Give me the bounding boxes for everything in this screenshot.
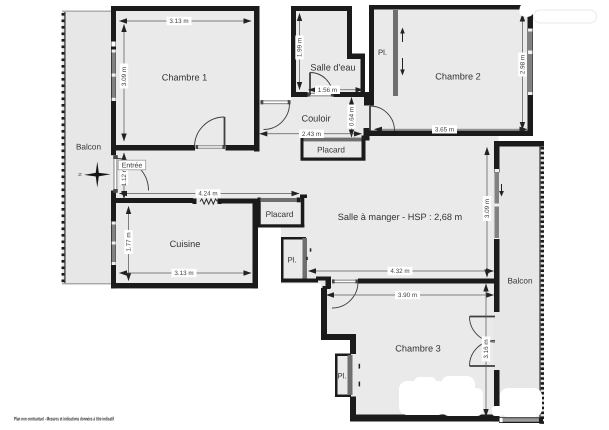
svg-text:1.77 m: 1.77 m	[126, 232, 133, 251]
svg-text:Pl.: Pl.	[378, 48, 387, 57]
svg-text:3.65 m: 3.65 m	[435, 127, 454, 134]
svg-text:Salle à manger - HSP : 2,68 m: Salle à manger - HSP : 2,68 m	[338, 212, 463, 222]
svg-text:3.09 m: 3.09 m	[484, 199, 491, 218]
svg-text:Pl.: Pl.	[287, 256, 296, 265]
svg-text:Balcon: Balcon	[76, 143, 101, 152]
svg-text:2.43 m: 2.43 m	[302, 131, 321, 138]
svg-text:Balcon: Balcon	[507, 277, 532, 286]
svg-text:4.24 m: 4.24 m	[198, 191, 217, 198]
svg-text:Placard: Placard	[317, 146, 345, 155]
svg-text:0.64 m: 0.64 m	[349, 107, 356, 126]
svg-text:Salle d'eau: Salle d'eau	[310, 63, 355, 73]
svg-text:1.99 m: 1.99 m	[297, 38, 304, 57]
svg-text:Cuisine: Cuisine	[170, 239, 201, 249]
svg-text:Entrée: Entrée	[122, 162, 143, 170]
svg-text:Pl.: Pl.	[337, 372, 346, 381]
svg-text:3.09 m: 3.09 m	[121, 67, 128, 86]
svg-text:Plan non contractuel - Mesures: Plan non contractuel - Mesures et indica…	[14, 417, 114, 423]
svg-text:1.56 m: 1.56 m	[318, 87, 337, 94]
svg-text:4.32 m: 4.32 m	[390, 268, 409, 275]
svg-text:N: N	[78, 173, 83, 176]
svg-text:3.90 m: 3.90 m	[398, 292, 417, 299]
svg-text:2.98 m: 2.98 m	[520, 55, 527, 74]
svg-text:3.13 m: 3.13 m	[169, 18, 188, 25]
svg-text:Chambre 2: Chambre 2	[435, 72, 480, 82]
svg-text:3.13 m: 3.13 m	[174, 270, 193, 277]
svg-text:Chambre 1: Chambre 1	[162, 73, 207, 83]
svg-text:Chambre 3: Chambre 3	[395, 344, 440, 354]
svg-text:3.16 m: 3.16 m	[483, 339, 490, 358]
svg-text:Couloir: Couloir	[301, 114, 330, 124]
svg-text:Placard: Placard	[266, 210, 294, 219]
